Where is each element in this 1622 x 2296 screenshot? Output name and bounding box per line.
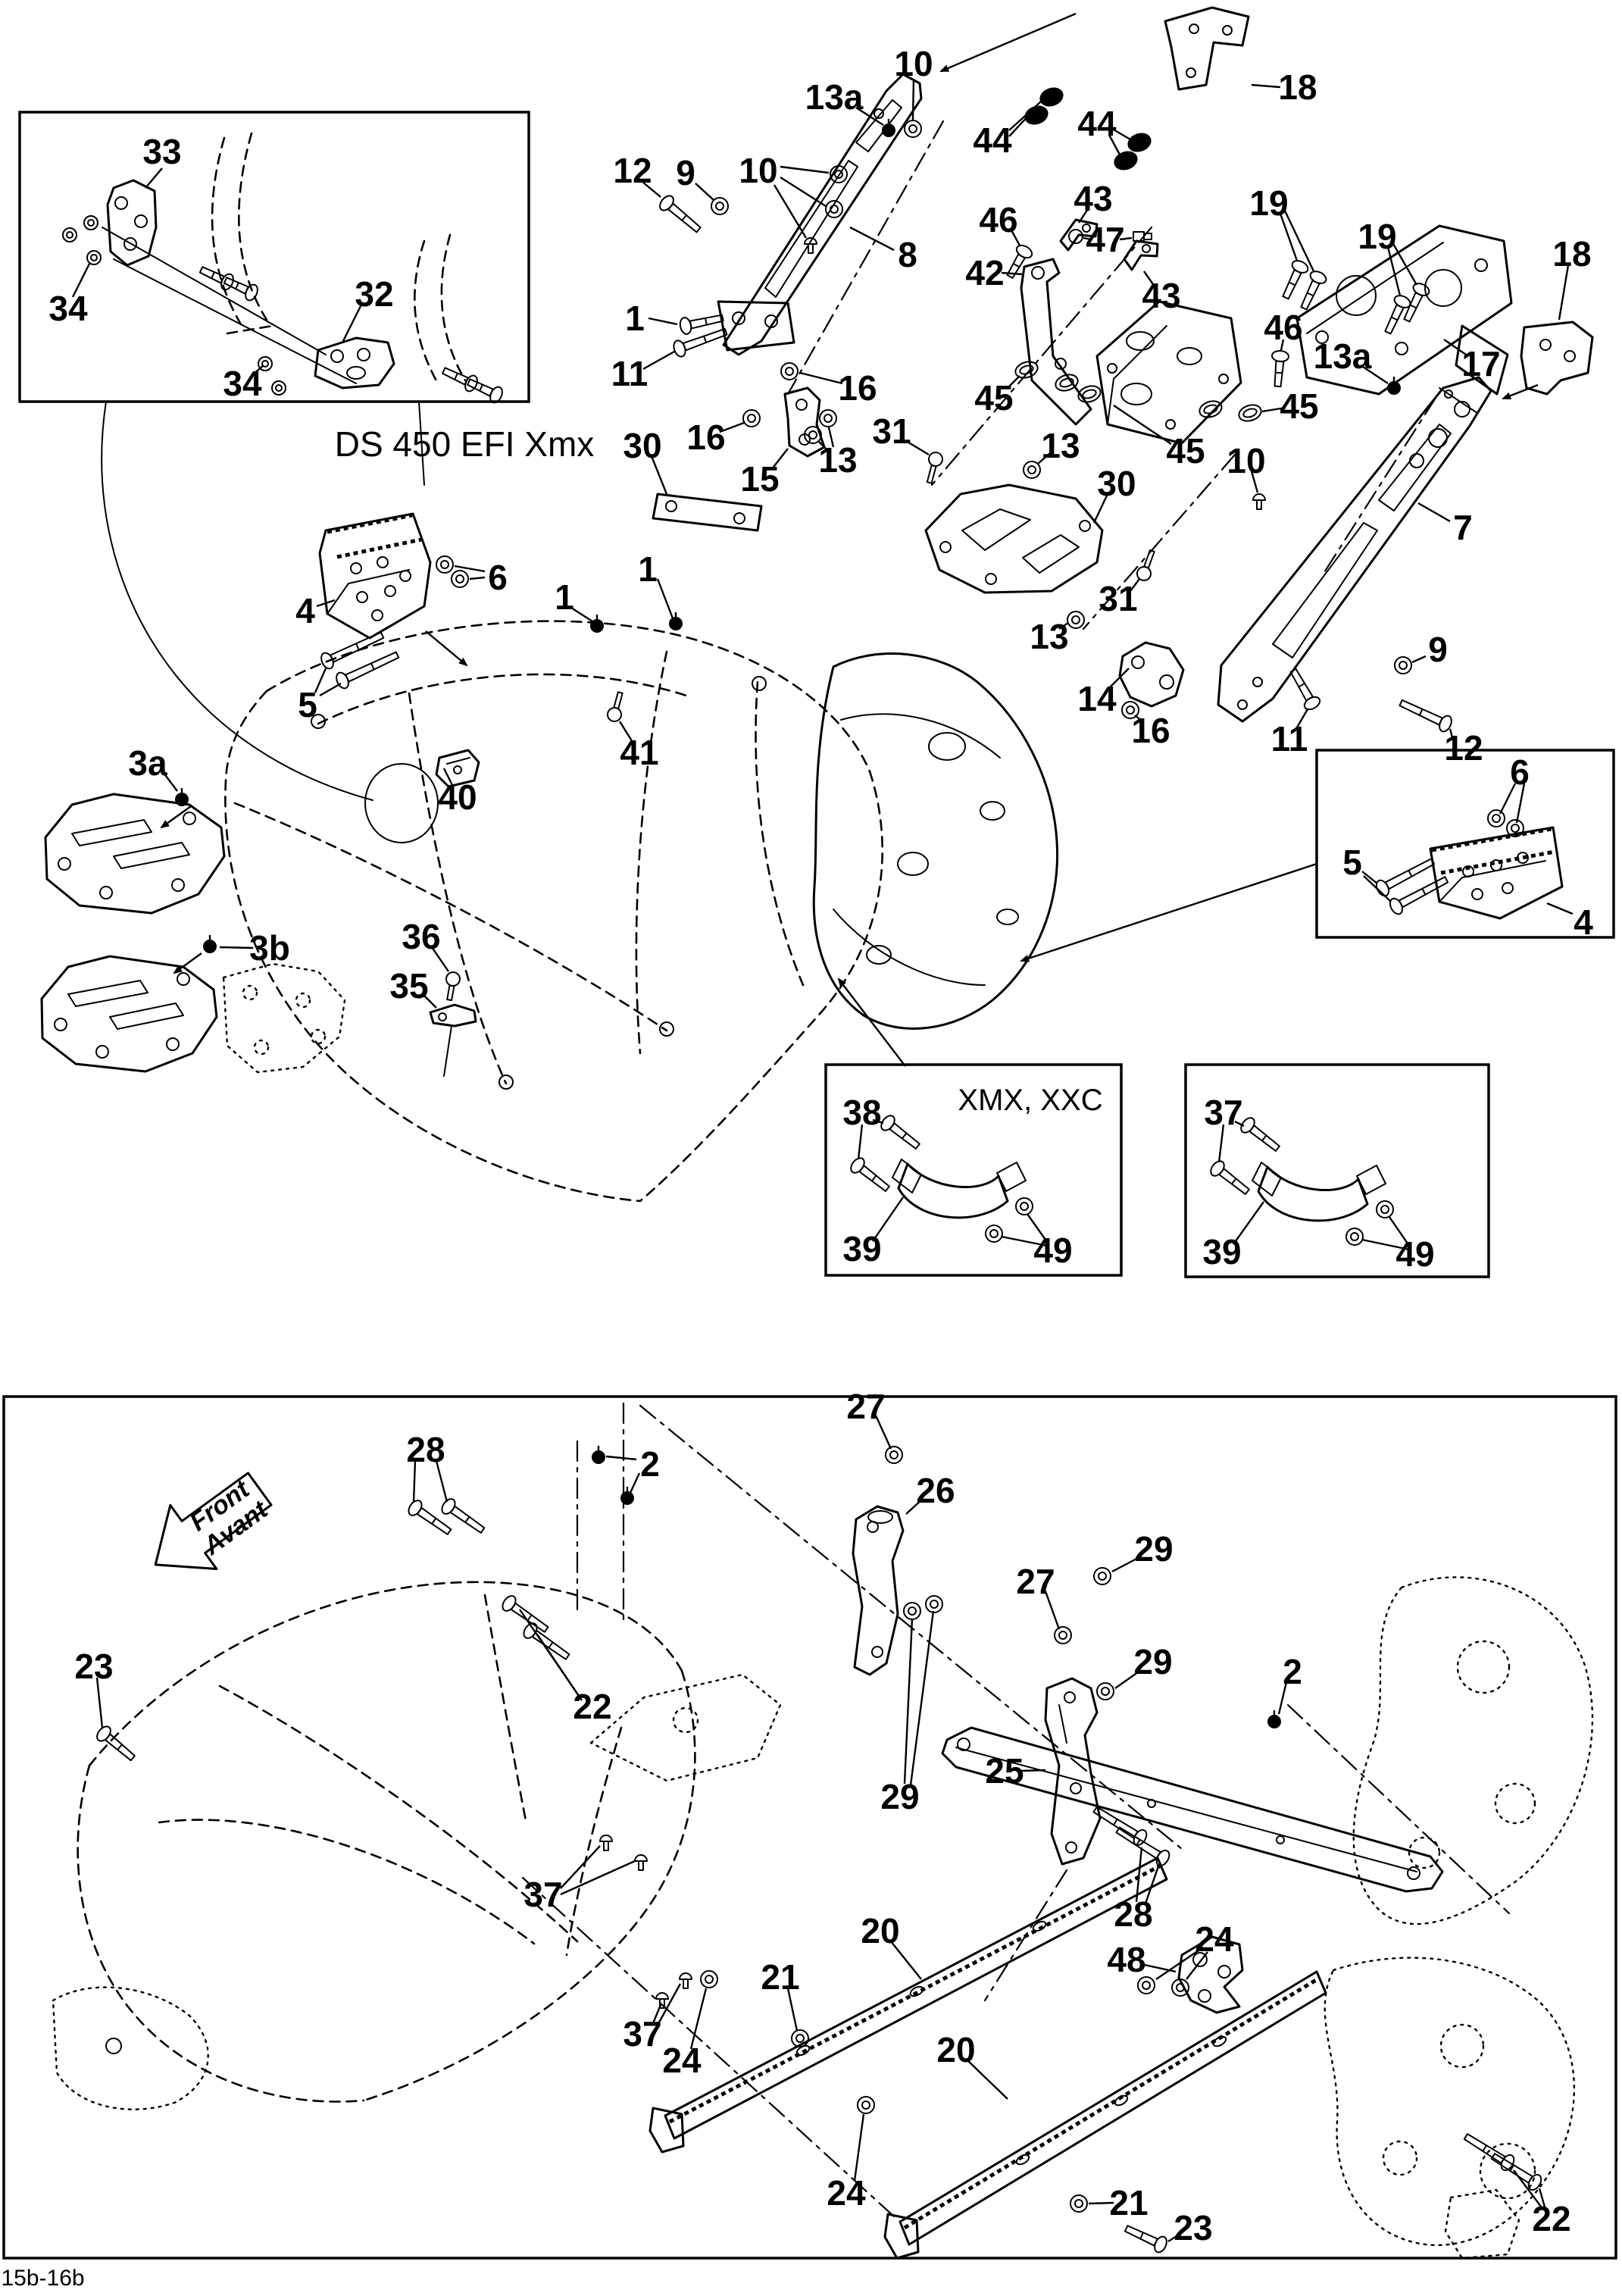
- leader-line-5: [320, 683, 341, 696]
- nut-fastener: [436, 556, 453, 573]
- callout-10: 10: [1227, 441, 1265, 480]
- callout-39: 39: [842, 1229, 881, 1268]
- callout-3b: 3b: [249, 928, 290, 968]
- callout-numbers-layer: 3334323413a10101298111113041403a3b363545…: [48, 44, 1593, 2248]
- callout-15: 15: [740, 459, 779, 499]
- fnut-fastener: [590, 615, 604, 633]
- nut-fastener: [1016, 1198, 1033, 1215]
- callout-39: 39: [1202, 1232, 1241, 1272]
- leader-line-16: [800, 373, 842, 383]
- callout-3a: 3a: [128, 743, 167, 783]
- callout-30: 30: [1097, 464, 1136, 503]
- bolt-fastener: [1388, 872, 1451, 916]
- callout-18: 18: [1552, 234, 1591, 274]
- bracket-18-right: [1521, 322, 1592, 394]
- screw-fastener: [923, 451, 944, 484]
- callout-2: 2: [1283, 1652, 1302, 1691]
- leader-lines-layer: [73, 79, 1573, 2241]
- plate-30: [926, 485, 1102, 593]
- leader-line-1: [648, 318, 677, 324]
- nut-fastener: [1346, 1228, 1363, 1245]
- texts-layer: DS 450 EFI XmxXMX, XXC30T1215b-16b: [0, 424, 1103, 2291]
- nut-fastener: [886, 1447, 902, 1463]
- bolt-fastener: [1278, 258, 1310, 301]
- callout-13a: 13a: [805, 77, 864, 117]
- leader-line-24: [691, 1988, 706, 2049]
- leader-line-2: [630, 1473, 639, 1493]
- leader-line-9: [1412, 656, 1426, 662]
- callout-9: 9: [1428, 630, 1448, 669]
- u-bracket-xmx: [892, 1159, 1026, 1218]
- callout-43: 43: [1074, 179, 1112, 218]
- bolt-fastener: [440, 363, 480, 393]
- leader-line-2: [606, 1456, 636, 1459]
- nut-fastener: [452, 571, 468, 587]
- callout-37: 37: [1204, 1093, 1242, 1132]
- callout-28: 28: [1114, 1894, 1152, 1934]
- callout-11: 11: [611, 354, 648, 393]
- callout-40: 40: [438, 777, 477, 817]
- leader-line-42: [1002, 273, 1023, 274]
- bolt-fastener: [1239, 1115, 1283, 1155]
- callout-46: 46: [1264, 308, 1302, 347]
- callout-24: 24: [827, 2173, 866, 2213]
- bolt-fastener: [319, 627, 386, 671]
- bolt-fastener: [1208, 1159, 1252, 1198]
- callout-45: 45: [974, 378, 1013, 418]
- callout-45: 45: [1280, 386, 1318, 426]
- knuckle-upper-right: [1354, 1577, 1592, 1924]
- callout-19: 19: [1358, 217, 1396, 256]
- callout-1: 1: [555, 577, 574, 617]
- leader-line-48: [1141, 1964, 1176, 1972]
- bracket-25: [1045, 1678, 1100, 1864]
- plate-7: [1218, 377, 1491, 721]
- callout-22: 22: [573, 1687, 611, 1726]
- leader-line-9: [695, 183, 714, 200]
- stud-fastener: [635, 1855, 647, 1870]
- leader-line-3b: [220, 947, 253, 948]
- stud-fastener: [1253, 494, 1265, 509]
- leader-line-6: [470, 577, 485, 579]
- bolt-fastener: [1374, 854, 1437, 898]
- fnut-fastener: [203, 935, 217, 953]
- callout-27: 27: [1016, 1562, 1055, 1601]
- callout-10: 10: [739, 151, 777, 190]
- leader-line-45: [1114, 405, 1171, 444]
- bracket-33: [108, 180, 156, 265]
- bracket-14: [1120, 643, 1183, 706]
- callout-29: 29: [1134, 1529, 1173, 1569]
- callout-47: 47: [1086, 220, 1124, 259]
- callout-13: 13: [818, 440, 857, 480]
- arrows-layer: [161, 14, 1538, 1066]
- bushings-16: [743, 363, 798, 427]
- washer-fastener: [87, 251, 101, 264]
- leader-line-37: [561, 1861, 635, 1894]
- callout-33: 33: [142, 132, 181, 171]
- callout-44: 44: [973, 120, 1012, 160]
- callout-11: 11: [1271, 719, 1308, 759]
- bolt-fastener: [1270, 350, 1289, 387]
- callout-20: 20: [936, 2030, 975, 2069]
- parts-diagram-page: Front Avant 3334323413a10101298111113041…: [0, 0, 1622, 2296]
- bolt-fastener: [439, 1497, 487, 1537]
- callout-41: 41: [620, 733, 658, 772]
- bolt-fastener: [198, 262, 236, 292]
- skid-plate-3a: [45, 794, 224, 913]
- callout-30: 30: [623, 426, 661, 465]
- washer-fastener: [272, 381, 286, 395]
- callout-6: 6: [1510, 752, 1530, 792]
- callout-24: 24: [662, 2041, 702, 2080]
- footrest-right-inset: [1430, 827, 1562, 918]
- leader-line-10: [780, 167, 829, 173]
- nut-fastener: [1097, 1683, 1114, 1700]
- bolt-fastener: [406, 1498, 454, 1539]
- callout-8: 8: [898, 235, 917, 274]
- callout-21: 21: [761, 1957, 799, 1997]
- callout-6: 6: [488, 558, 508, 597]
- pointer-arrow: [426, 631, 467, 665]
- callout-48: 48: [1107, 1940, 1145, 1979]
- screw-fastener: [606, 691, 627, 723]
- leader-line-10: [774, 185, 806, 238]
- leader-line-4: [1547, 903, 1573, 914]
- bolt-fastener: [879, 1113, 923, 1153]
- callout-26: 26: [916, 1471, 955, 1510]
- callout-27: 27: [846, 1387, 885, 1426]
- fnut-fastener: [882, 119, 895, 137]
- nut-fastener: [1067, 612, 1084, 628]
- bolt-fastener: [1399, 281, 1431, 324]
- nut-fastener: [1070, 2195, 1087, 2212]
- nut-fastener: [1488, 810, 1505, 827]
- callout-23: 23: [1174, 2208, 1212, 2248]
- leader-line-29: [905, 1619, 912, 1784]
- frame-bottom-dashed: [53, 1582, 780, 2110]
- leader-line-1: [571, 608, 592, 621]
- nut-fastener: [926, 1596, 942, 1613]
- callout-43: 43: [1142, 276, 1180, 315]
- pointer-arrow: [1021, 864, 1317, 961]
- callout-19: 19: [1249, 183, 1288, 223]
- nut-fastener: [1377, 1201, 1393, 1218]
- screw-fastener: [1135, 549, 1158, 583]
- nut-fastener: [904, 1603, 920, 1619]
- bracket-18-top: [1165, 8, 1249, 89]
- strap-30: [653, 494, 761, 530]
- callout-1: 1: [625, 299, 645, 338]
- pointer-arrow: [839, 979, 905, 1066]
- fnut-fastener: [592, 1446, 605, 1464]
- callout-35: 35: [389, 966, 428, 1006]
- inset-brackets-box: [20, 112, 529, 402]
- bolt-fastener: [500, 1594, 552, 1636]
- frame-top-dashed: [225, 621, 882, 1201]
- callout-25: 25: [985, 1751, 1024, 1791]
- skid-plate-3b: [42, 956, 217, 1071]
- cap-fastener: [1037, 84, 1066, 109]
- bolt-fastener: [1123, 2221, 1169, 2254]
- callout-22: 22: [1532, 2199, 1570, 2238]
- nut-fastener: [1395, 657, 1411, 674]
- callout-45: 45: [1166, 431, 1205, 471]
- nut-fastener: [858, 2097, 874, 2113]
- doc-id: 30T1215b-16b: [0, 2266, 85, 2291]
- stud-fastener: [600, 1835, 612, 1850]
- ring-fastener: [1054, 372, 1080, 393]
- bolt-fastener: [465, 374, 505, 405]
- callout-16: 16: [838, 368, 877, 408]
- pointer-arrow: [941, 14, 1076, 71]
- callout-13: 13: [1030, 617, 1068, 656]
- callout-16: 16: [1131, 711, 1170, 750]
- bracket-35: [430, 1005, 476, 1076]
- front-direction-arrow: Front Avant: [133, 1457, 283, 1597]
- model-label: DS 450 EFI Xmx: [335, 424, 595, 464]
- callout-21: 21: [1109, 2183, 1148, 2222]
- leader-line-8: [850, 227, 894, 250]
- bolt-fastener: [521, 1621, 573, 1663]
- callout-46: 46: [979, 200, 1017, 239]
- callout-10: 10: [894, 44, 933, 83]
- leader-line-18: [1252, 85, 1280, 87]
- leader-line-10: [780, 177, 826, 206]
- callout-32: 32: [355, 274, 393, 314]
- nut-fastener: [986, 1225, 1002, 1242]
- callout-12: 12: [1444, 728, 1483, 768]
- callout-1: 1: [638, 549, 658, 589]
- nut-fastener: [1055, 1627, 1071, 1644]
- nut-fastener: [1094, 1568, 1111, 1584]
- callout-4: 4: [1574, 902, 1593, 942]
- leader-line-1: [658, 579, 673, 618]
- bolt-fastener: [95, 1724, 139, 1764]
- washer-fastener: [63, 228, 77, 242]
- callout-13a: 13a: [1314, 336, 1372, 376]
- bracket-43-lower: [1124, 241, 1158, 270]
- callout-9: 9: [676, 153, 695, 192]
- leader-line-10: [913, 79, 914, 120]
- variant-label: XMX, XXC: [958, 1084, 1102, 1117]
- callout-29: 29: [1133, 1642, 1172, 1681]
- callout-34: 34: [48, 289, 88, 328]
- callout-20: 20: [861, 1911, 899, 1950]
- leader-line-5: [1364, 876, 1391, 902]
- ring-fastener: [1237, 402, 1264, 424]
- nut-fastener: [905, 120, 921, 137]
- screw-fastener: [442, 971, 461, 1002]
- nut-fastener: [1024, 461, 1040, 478]
- bolt-fastener: [1286, 666, 1322, 712]
- callout-5: 5: [1342, 843, 1362, 882]
- bracket-32: [315, 338, 394, 388]
- pointer-arrow: [1503, 385, 1538, 399]
- u-bracket-right: [1252, 1162, 1386, 1221]
- callout-42: 42: [965, 253, 1004, 292]
- leader-line-24: [855, 2114, 864, 2181]
- callout-13: 13: [1041, 426, 1080, 465]
- callout-2: 2: [640, 1444, 660, 1484]
- callout-49: 49: [1395, 1234, 1434, 1274]
- leader-line-44: [1009, 115, 1029, 136]
- stud-fastener: [680, 1973, 692, 1988]
- bolt-fastener: [849, 1156, 892, 1195]
- callout-38: 38: [842, 1093, 881, 1132]
- bolt-fastener: [658, 193, 705, 236]
- nut-fastener: [711, 198, 728, 214]
- bolt-fastener: [1296, 269, 1328, 311]
- bracket-26: [853, 1506, 903, 1675]
- bolt-fastener: [1002, 242, 1034, 280]
- callout-5: 5: [298, 685, 317, 724]
- callout-24: 24: [1195, 1919, 1234, 1959]
- callout-31: 31: [872, 411, 911, 451]
- bolt-fastener: [334, 647, 401, 690]
- washer-fastener: [84, 216, 98, 230]
- nut-fastener: [701, 1971, 717, 1988]
- callout-37: 37: [623, 2014, 661, 2054]
- nut-fastener: [1138, 1977, 1155, 1994]
- callout-16: 16: [686, 418, 725, 457]
- callout-28: 28: [406, 1430, 445, 1469]
- callout-36: 36: [402, 917, 440, 956]
- nut-fastener: [820, 410, 836, 427]
- callout-44: 44: [1077, 104, 1117, 143]
- ghost-bracket: [223, 964, 345, 1072]
- callout-31: 31: [1099, 579, 1137, 618]
- callout-12: 12: [613, 151, 652, 190]
- footrest-left: [320, 514, 430, 638]
- construction-lines: [102, 121, 1509, 2216]
- callout-29: 29: [880, 1777, 919, 1816]
- callout-37: 37: [523, 1875, 562, 1914]
- callout-7: 7: [1453, 508, 1473, 547]
- parts-diagram-svg: Front Avant 3334323413a10101298111113041…: [0, 0, 1622, 2296]
- callout-49: 49: [1033, 1231, 1072, 1270]
- callout-23: 23: [74, 1647, 113, 1686]
- callout-17: 17: [1461, 344, 1500, 383]
- rail-20-lower: [885, 1972, 1326, 2258]
- leader-line-7: [1418, 503, 1450, 521]
- ring-fastener: [1198, 399, 1224, 420]
- bolt-fastener: [1380, 293, 1412, 336]
- callout-34: 34: [223, 364, 262, 403]
- callout-14: 14: [1077, 679, 1117, 718]
- engine-mount: [1097, 302, 1241, 443]
- callout-18: 18: [1278, 67, 1317, 107]
- callout-4: 4: [295, 591, 315, 630]
